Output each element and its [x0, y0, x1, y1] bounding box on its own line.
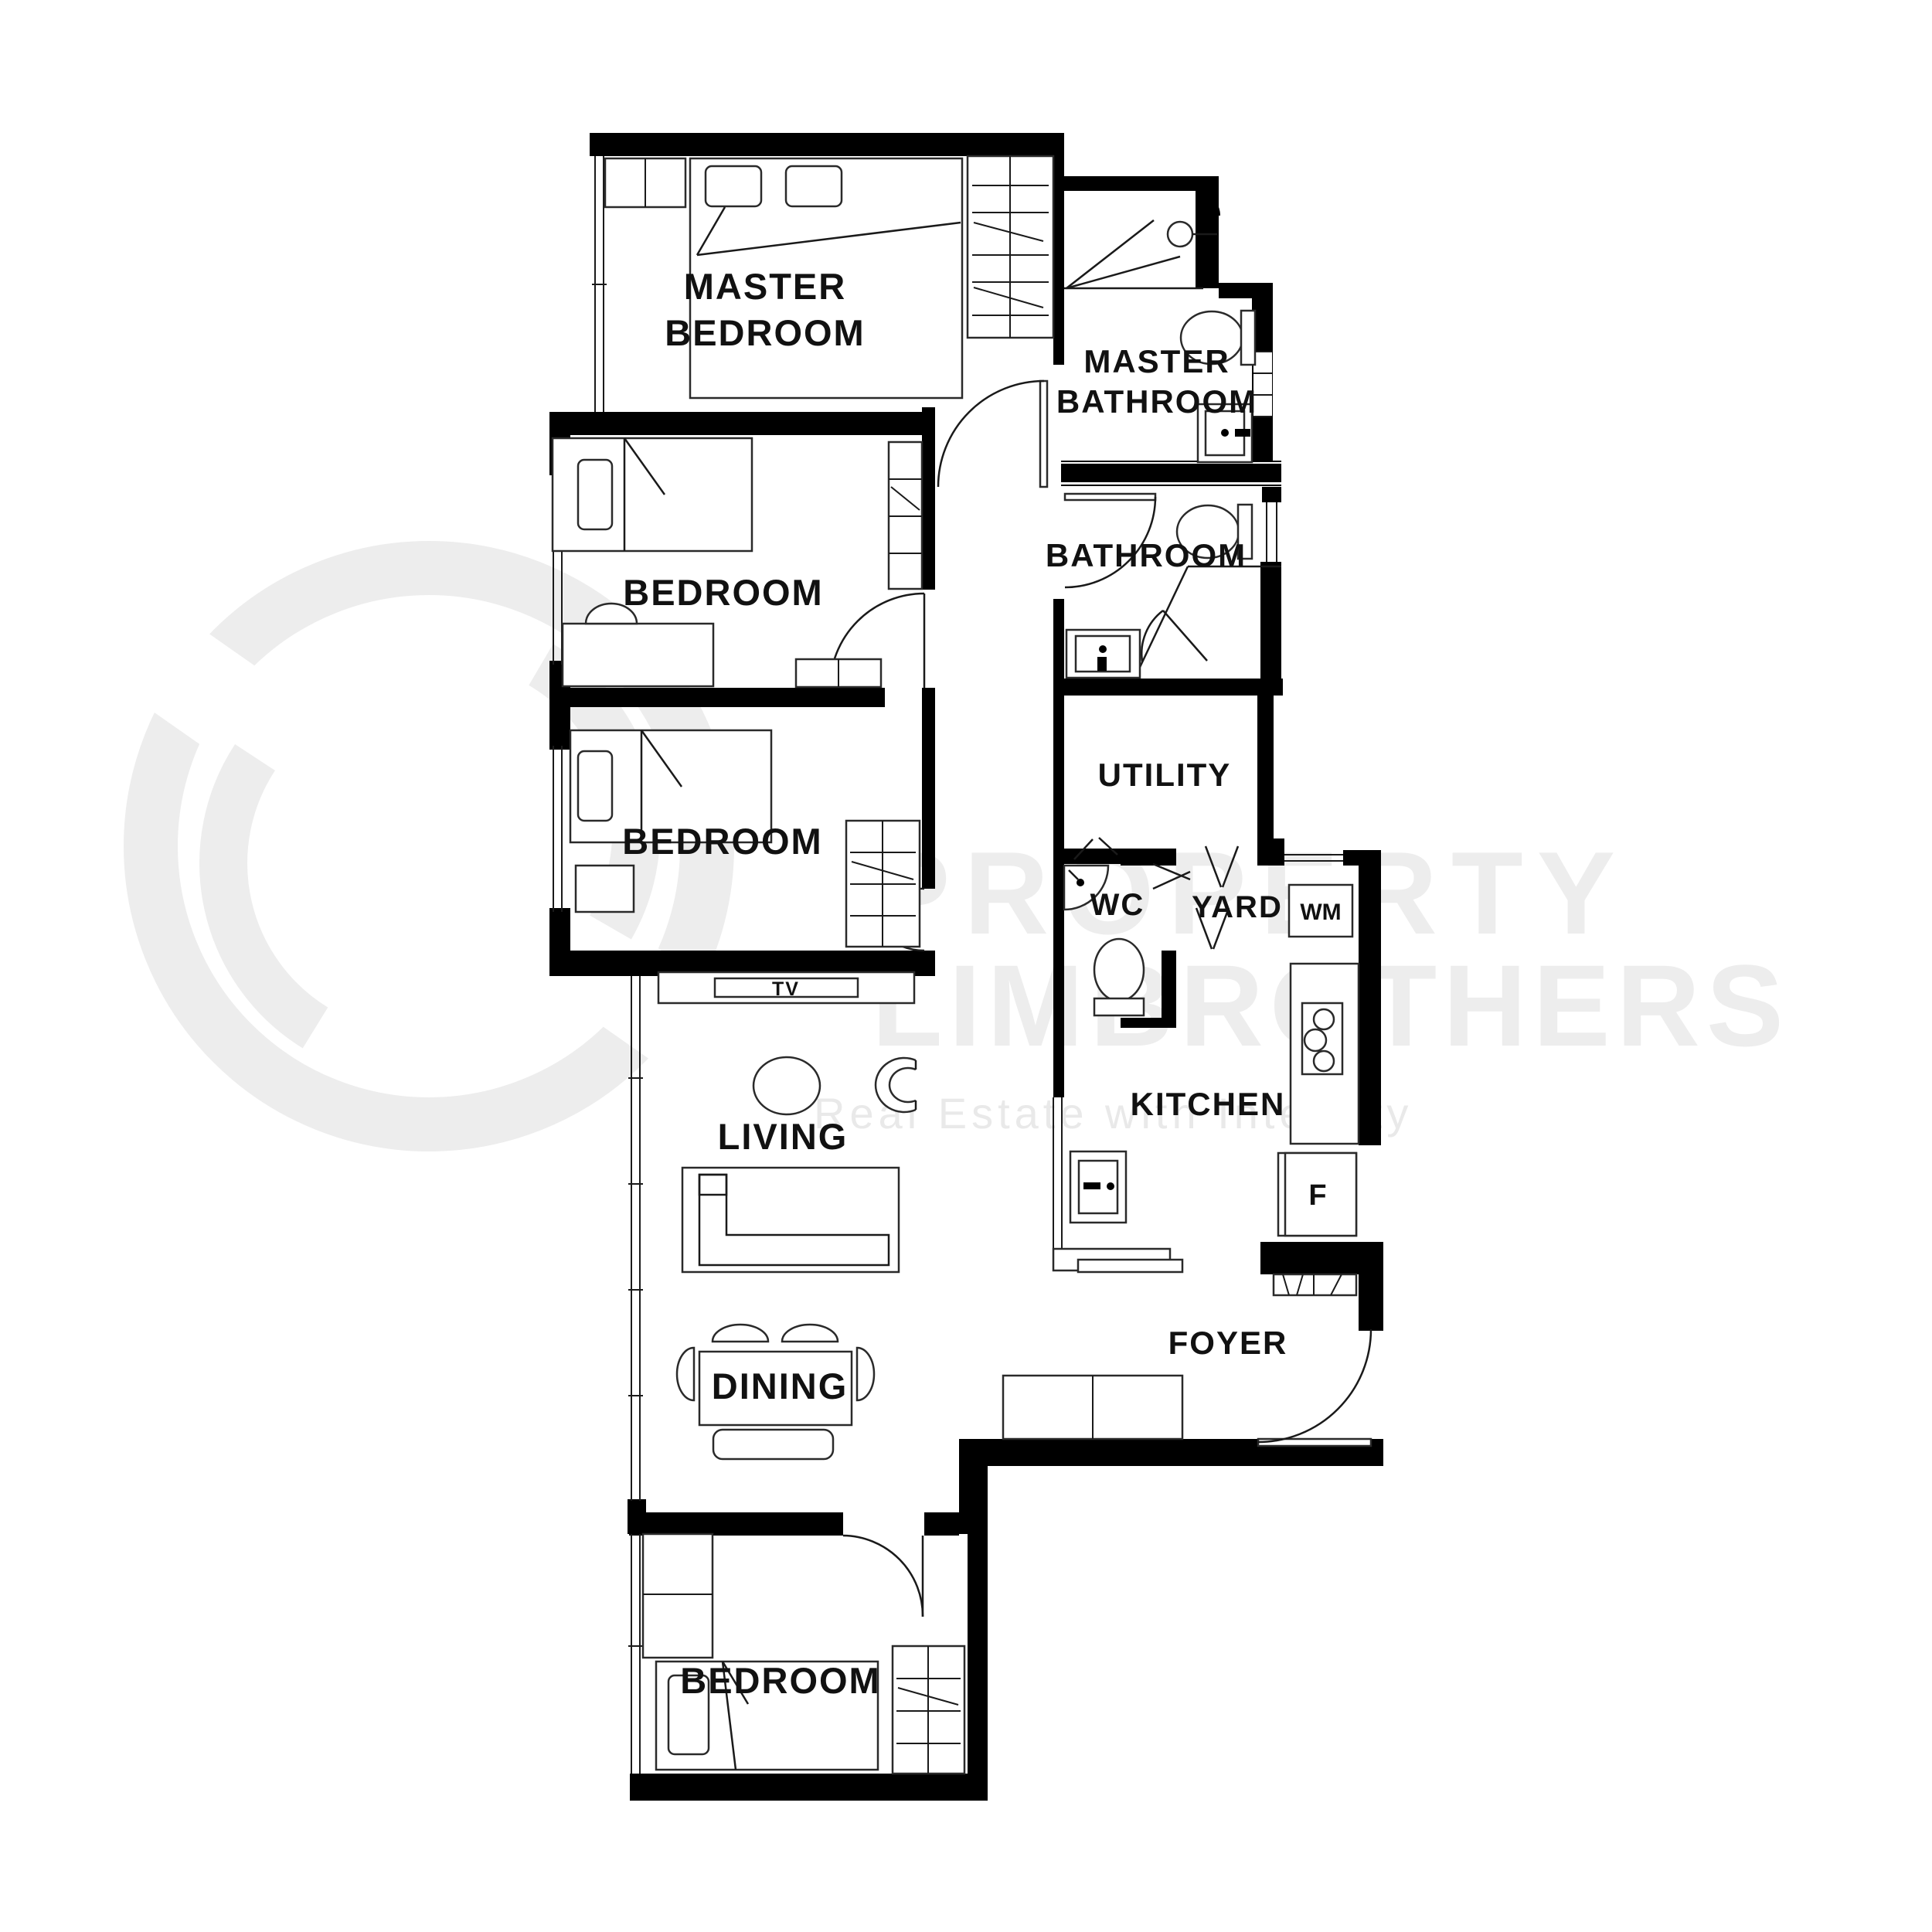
label-tv: TV	[772, 978, 800, 1000]
label-master-bedroom-1: MASTER	[684, 266, 846, 307]
label-master-bedroom-2: BEDROOM	[665, 312, 865, 353]
label-wm: WM	[1300, 900, 1341, 925]
sofa-icon	[682, 1168, 899, 1272]
bed-mid-icon	[553, 438, 752, 551]
label-master-bathroom-1: MASTER	[1083, 343, 1230, 379]
label-kitchen: KITCHEN	[1131, 1086, 1286, 1122]
wardrobe-lower-icon	[846, 821, 920, 947]
label-bedroom-bottom: BEDROOM	[680, 1660, 880, 1701]
hob-icon	[1302, 1003, 1342, 1074]
label-dining: DINING	[712, 1366, 849, 1406]
shower-bathroom-icon	[1134, 566, 1281, 679]
cabinet-master-icon	[605, 158, 685, 207]
label-bedroom-mid: BEDROOM	[623, 572, 823, 613]
wardrobe-bottom-icon	[893, 1646, 964, 1774]
toilet-wc-icon	[1094, 939, 1144, 1015]
desk-mid-icon	[563, 604, 881, 687]
label-bathroom: BATHROOM	[1046, 537, 1247, 573]
kitchen-counter-right	[1291, 964, 1359, 1144]
sink-bathroom-icon	[1066, 630, 1140, 678]
label-wc: WC	[1090, 888, 1145, 922]
window-bedroom-bottom	[628, 1534, 643, 1774]
label-fridge: F	[1308, 1179, 1326, 1212]
label-living: LIVING	[718, 1116, 849, 1157]
label-foyer: FOYER	[1168, 1325, 1288, 1361]
window-bathroom	[1267, 502, 1277, 562]
door-bedroom-bottom	[843, 1536, 923, 1617]
armchair-round-icon	[753, 1057, 820, 1114]
desk-bottom-icon	[643, 1534, 713, 1658]
floor-plan: PROPERTY LIMBROTHERS Real Estate with In…	[0, 0, 1932, 1932]
sideboard-foyer-icon	[1003, 1376, 1182, 1439]
label-bedroom-lower: BEDROOM	[622, 821, 822, 862]
label-master-bathroom-2: BATHROOM	[1056, 383, 1257, 420]
kitchen-sink-icon	[1070, 1151, 1126, 1223]
label-yard: YARD	[1192, 890, 1283, 924]
shoe-rack-icon	[1274, 1274, 1356, 1295]
label-utility: UTILITY	[1098, 757, 1232, 793]
wardrobe-mid-icon	[889, 442, 922, 589]
cabinet-lower-icon	[576, 866, 634, 912]
wardrobe-master-icon	[968, 156, 1053, 338]
